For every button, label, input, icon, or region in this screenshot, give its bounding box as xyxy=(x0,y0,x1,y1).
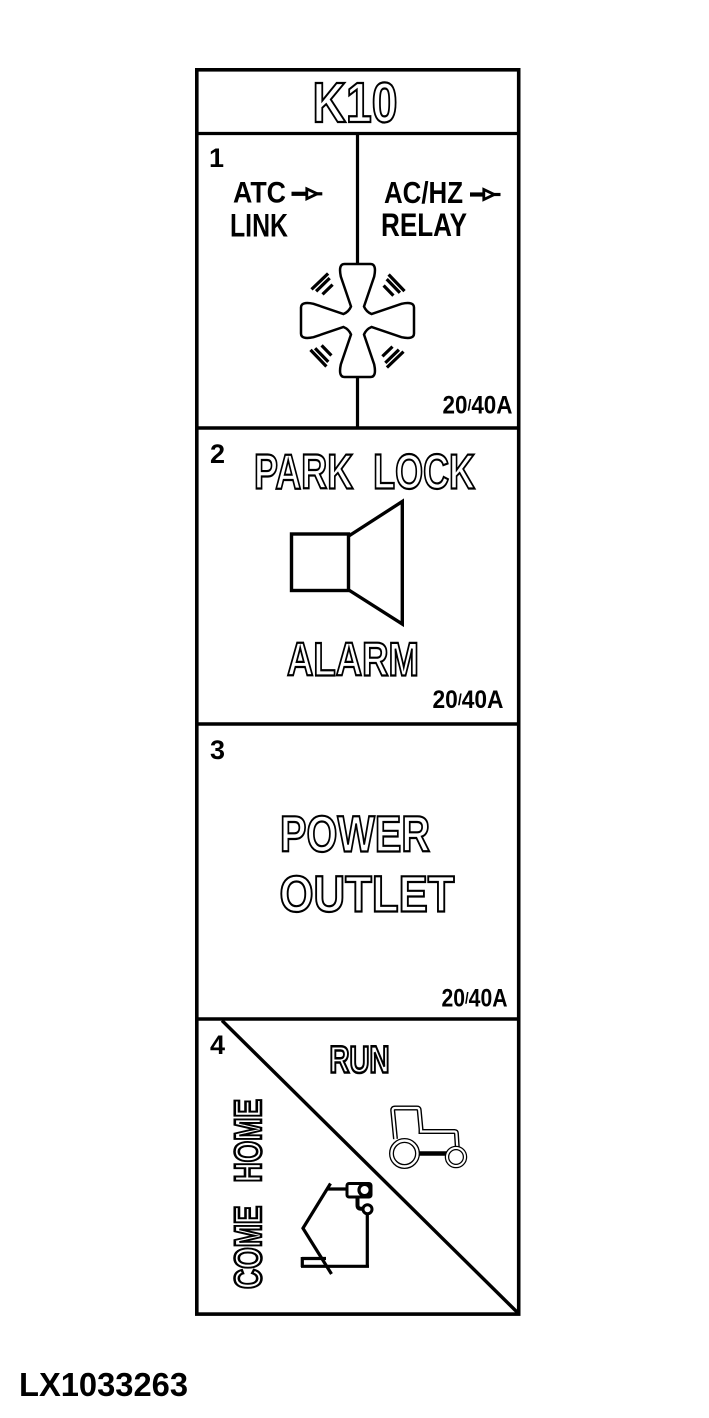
svg-text:OUTLET: OUTLET xyxy=(280,866,455,923)
svg-text:RUN: RUN xyxy=(330,1040,390,1082)
svg-text:PARK LOCK: PARK LOCK xyxy=(254,446,475,500)
svg-text:RELAY: RELAY xyxy=(381,207,467,243)
svg-text:COME HOME: COME HOME xyxy=(228,1099,270,1289)
svg-text:K10: K10 xyxy=(313,71,398,135)
svg-text:LX1033263: LX1033263 xyxy=(19,1367,188,1404)
svg-text:20/40A: 20/40A xyxy=(442,985,508,1013)
svg-text:POWER: POWER xyxy=(280,806,430,863)
svg-text:2: 2 xyxy=(210,439,225,469)
svg-text:20/40A: 20/40A xyxy=(443,392,513,420)
svg-text:LINK: LINK xyxy=(230,208,288,244)
svg-text:3: 3 xyxy=(210,735,225,765)
svg-text:4: 4 xyxy=(210,1030,225,1060)
svg-text:20/40A: 20/40A xyxy=(433,686,504,714)
svg-text:1: 1 xyxy=(209,143,224,173)
svg-text:ALARM: ALARM xyxy=(287,633,419,686)
svg-text:ATC: ATC xyxy=(233,177,286,210)
svg-text:AC/HZ: AC/HZ xyxy=(384,175,463,210)
